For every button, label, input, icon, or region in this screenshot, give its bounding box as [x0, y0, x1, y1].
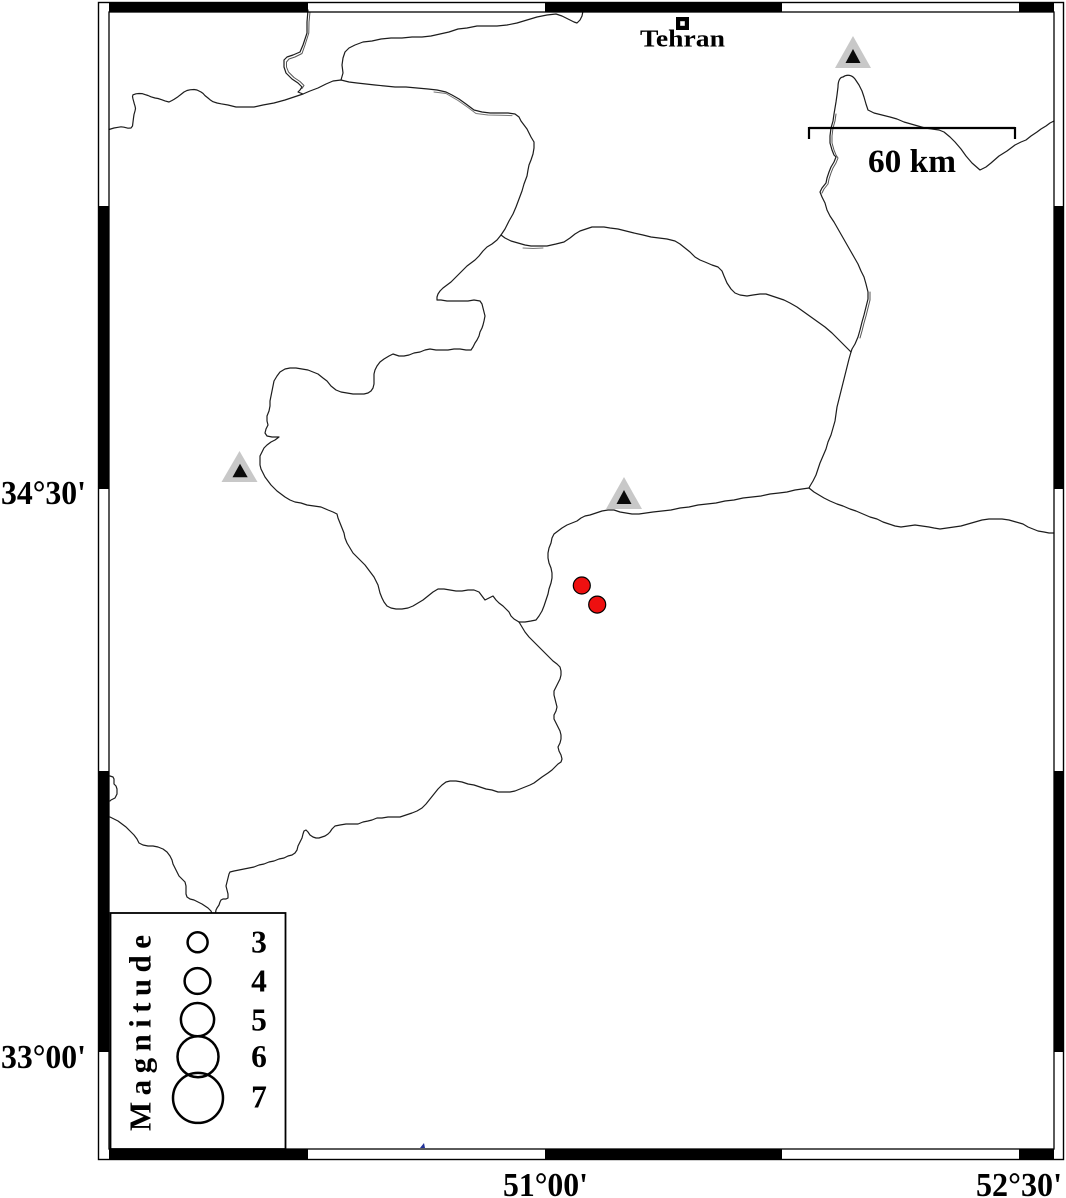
svg-text:6: 6 [251, 1039, 267, 1074]
svg-text:Magnitude: Magnitude [123, 931, 158, 1131]
svg-text:Tehran: Tehran [640, 27, 725, 53]
svg-text:7: 7 [251, 1080, 267, 1115]
svg-text:5: 5 [251, 1003, 267, 1038]
svg-text:60 km: 60 km [868, 144, 956, 180]
svg-text:52°30': 52°30' [976, 1167, 1062, 1198]
svg-text:33°00': 33°00' [1, 1039, 86, 1076]
svg-text:4: 4 [251, 964, 267, 999]
svg-text:3: 3 [251, 925, 267, 960]
svg-text:34°30': 34°30' [1, 475, 86, 512]
svg-text:51°00': 51°00' [503, 1167, 588, 1198]
